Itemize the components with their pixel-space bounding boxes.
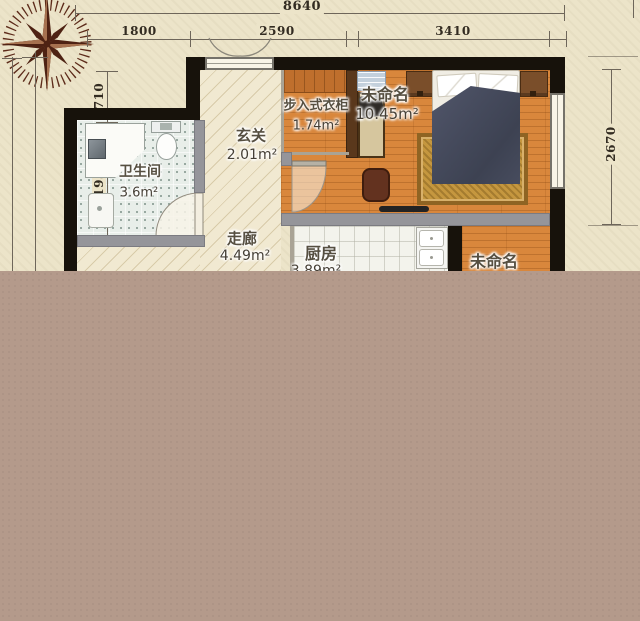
room-label-bottom-right: 未命名 xyxy=(470,248,518,272)
bathroom-door-leaf xyxy=(195,193,203,236)
partition-bedroom-kitchen xyxy=(281,213,550,226)
room-label-closet: 步入式衣柜 xyxy=(283,95,348,114)
window-casement-right-arc xyxy=(240,38,271,56)
bedroom-door-arc xyxy=(292,166,326,212)
window-top xyxy=(205,57,274,70)
bathroom-door-arc xyxy=(156,193,199,236)
room-label-kitchen: 厨房 xyxy=(305,240,337,264)
room-label-corridor: 走廊 xyxy=(227,228,257,249)
room-area-entry: 2.01m² xyxy=(227,147,277,163)
wall-kitchen-divider xyxy=(448,226,462,272)
room-label-bedroom: 未命名 xyxy=(361,81,409,105)
partition-bathroom-bottom xyxy=(77,235,205,247)
room-label-entry: 玄关 xyxy=(236,125,266,146)
wall-bathroom-top xyxy=(64,108,200,120)
room-label-bathroom: 卫生间 xyxy=(119,161,161,181)
partition-bedroom-door-stub xyxy=(281,152,292,166)
room-area-closet: 1.74m² xyxy=(293,119,340,134)
room-area-bathroom: 3.6m² xyxy=(120,186,159,201)
wall-top-b xyxy=(274,57,565,70)
room-area-bedroom: 10.45m² xyxy=(355,105,419,123)
floorplan-canvas: 8640 1800 2590 3410 710 1930 2670 xyxy=(0,0,640,621)
bedroom-door-leaf xyxy=(292,161,326,166)
blank-overlay-region xyxy=(0,271,640,621)
window-right xyxy=(550,93,565,189)
window-casement-left-arc xyxy=(209,38,240,56)
wall-bathroom-left xyxy=(64,108,77,272)
partition-bathroom-right xyxy=(194,120,205,193)
wall-right-lower xyxy=(550,189,565,272)
room-area-corridor: 4.49m² xyxy=(220,248,270,264)
wall-right-upper xyxy=(550,57,565,93)
